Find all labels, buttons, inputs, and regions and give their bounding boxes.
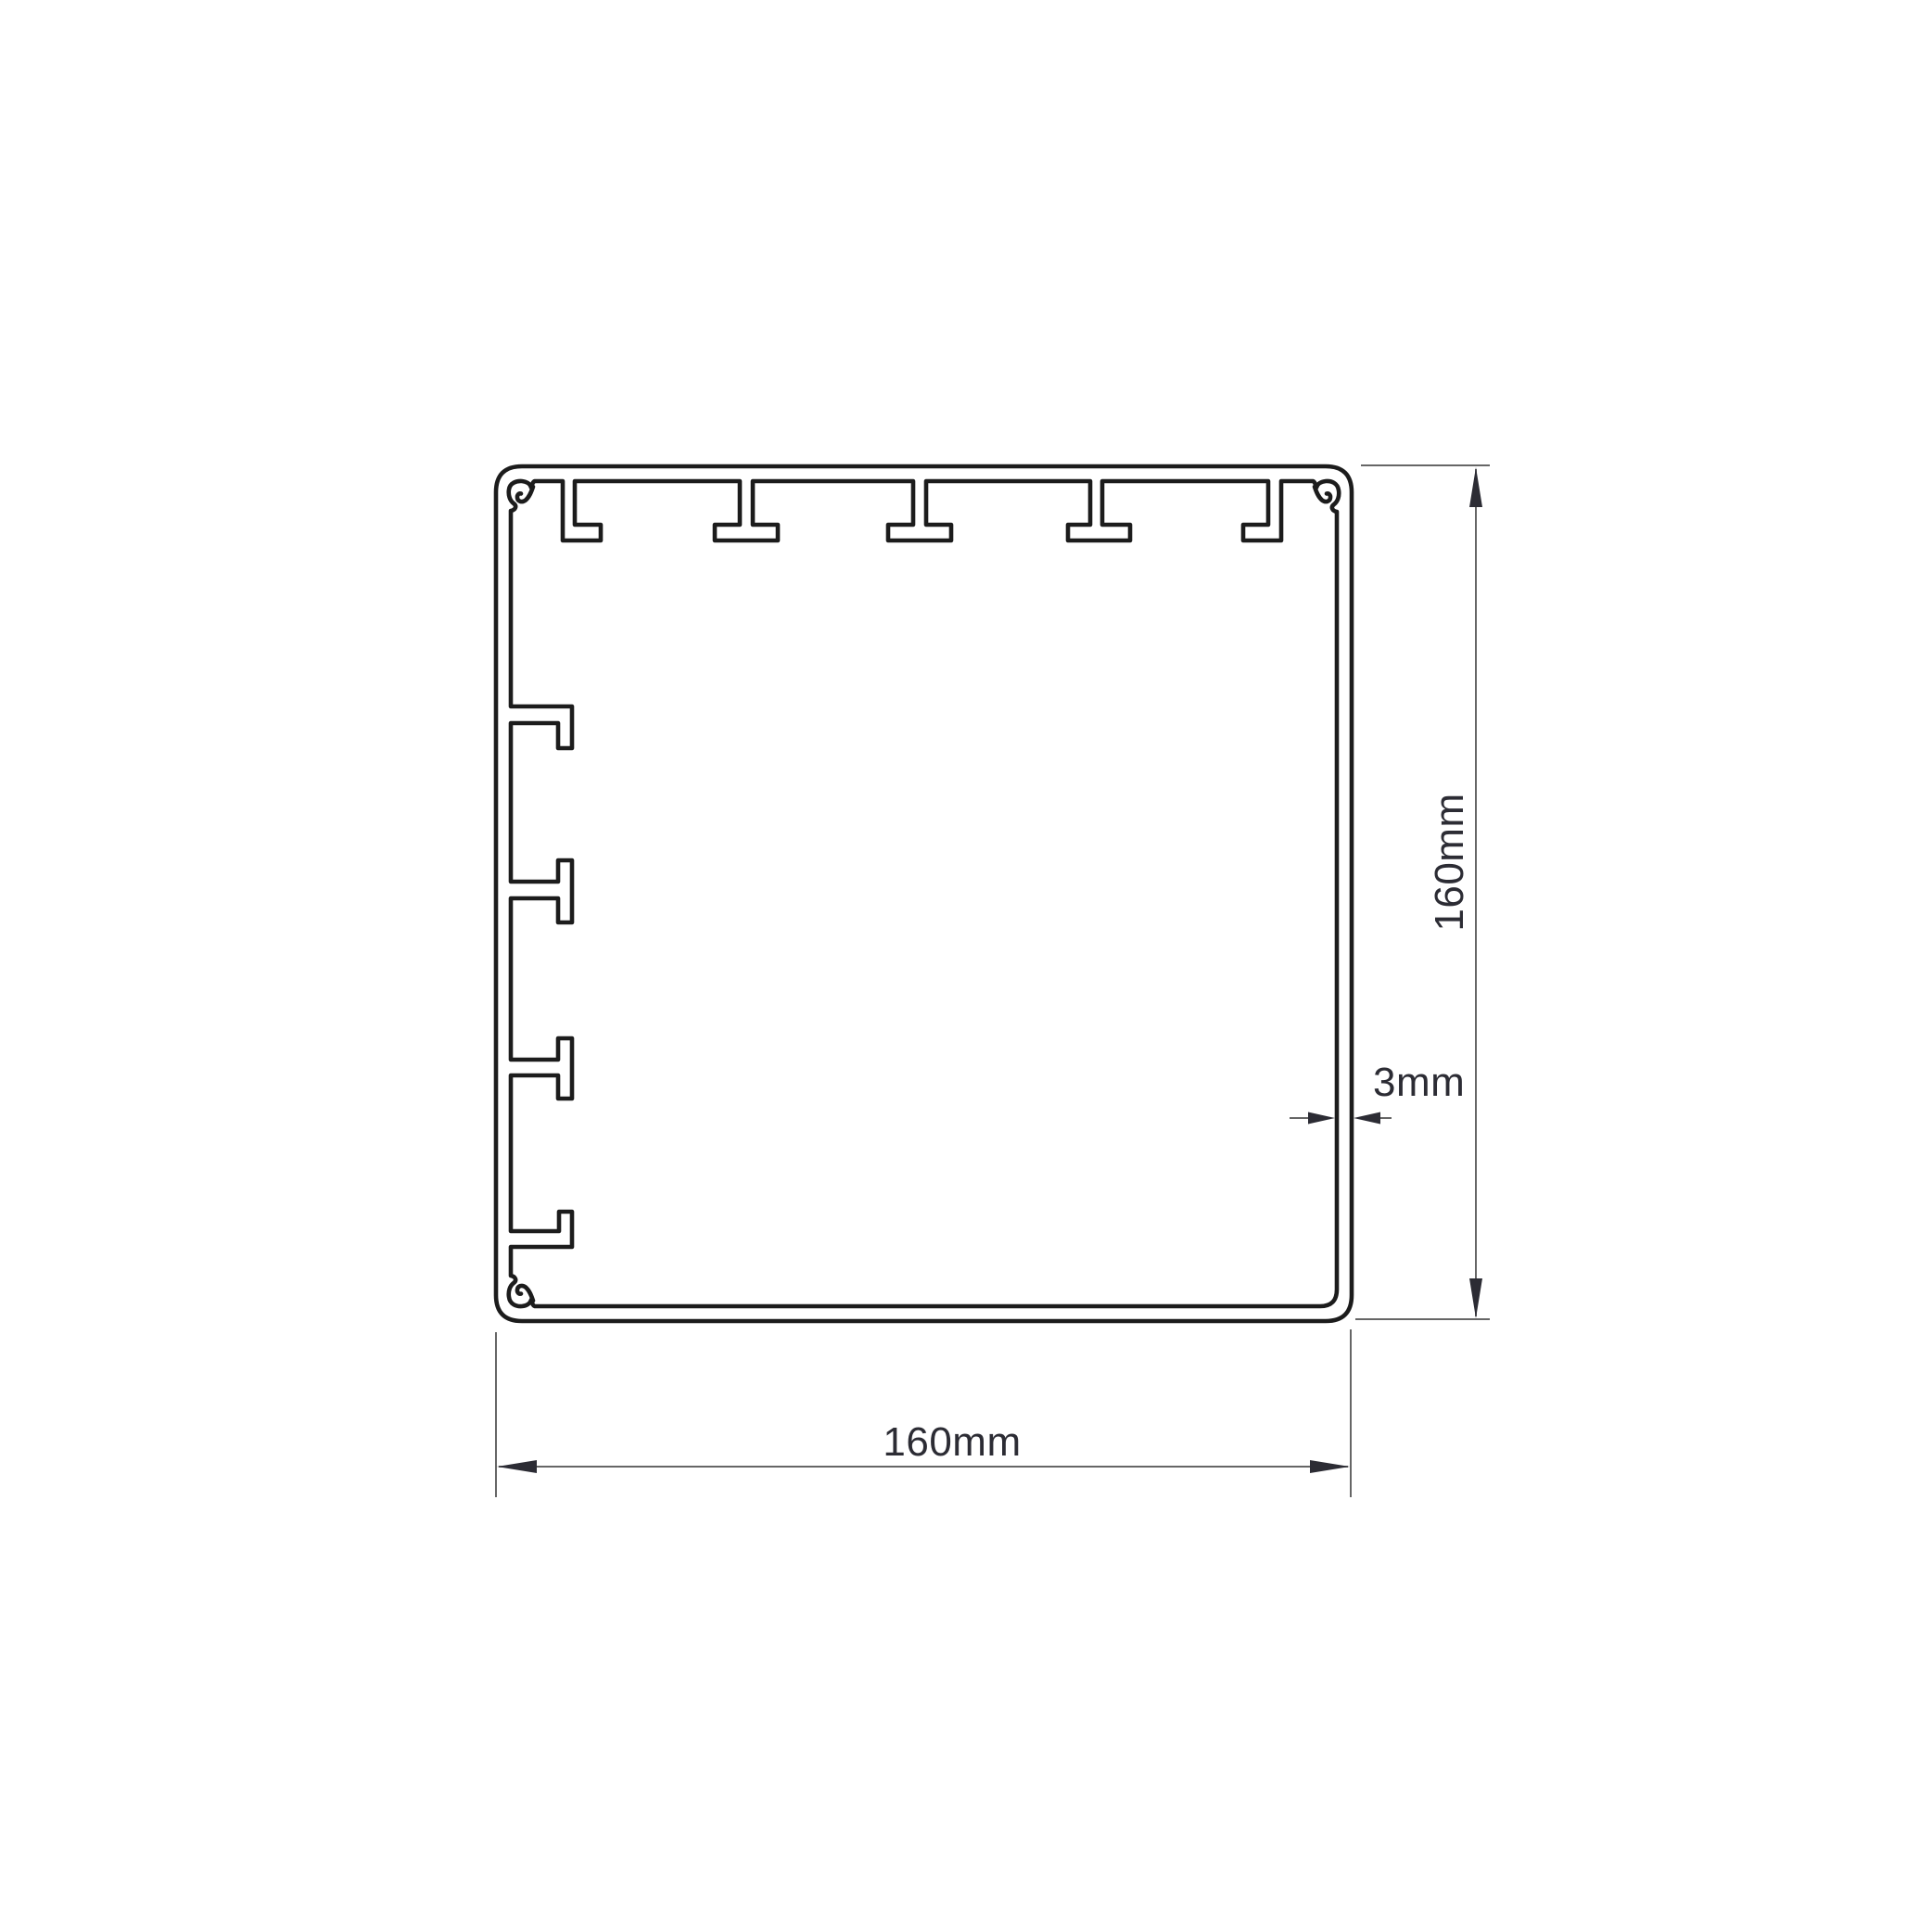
technical-drawing: 160mm 160mm 3mm bbox=[0, 0, 1932, 1932]
arrowhead-thickness-left-icon bbox=[1308, 1112, 1335, 1125]
height-dimension-label: 160mm bbox=[1427, 793, 1472, 931]
arrowhead-left-icon bbox=[497, 1460, 537, 1473]
dimension-wall-thickness: 3mm bbox=[1290, 1060, 1465, 1125]
screw-boss-curl-top-right-icon bbox=[1315, 487, 1330, 502]
arrowhead-down-icon bbox=[1469, 1278, 1482, 1318]
arrowhead-thickness-right-icon bbox=[1354, 1112, 1380, 1125]
drawing-canvas: 160mm 160mm 3mm bbox=[0, 0, 1932, 1932]
arrowhead-right-icon bbox=[1310, 1460, 1350, 1473]
profile-cross-section bbox=[496, 466, 1352, 1321]
dimension-width: 160mm bbox=[496, 1329, 1351, 1497]
wall-thickness-label: 3mm bbox=[1373, 1060, 1465, 1105]
screw-boss-curl-bottom-left-icon bbox=[517, 1286, 533, 1301]
arrowhead-up-icon bbox=[1469, 467, 1482, 507]
dimension-height: 160mm bbox=[1355, 465, 1490, 1319]
screw-boss-curl-top-left-icon bbox=[517, 487, 533, 502]
width-dimension-label: 160mm bbox=[883, 1419, 1021, 1465]
